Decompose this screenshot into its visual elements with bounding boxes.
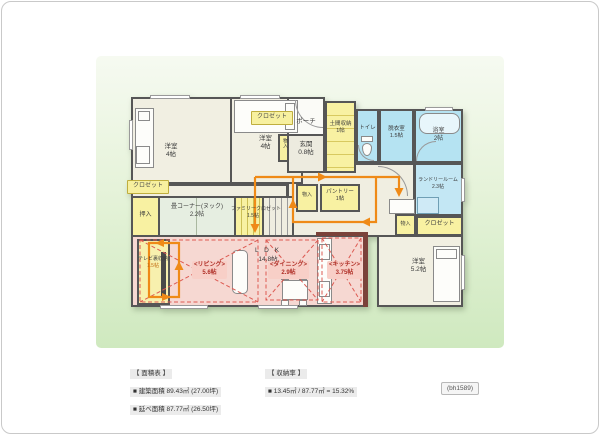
bedroom-c-label: 洋室5.2帖 <box>396 258 441 275</box>
kitchen-zone-badge: <キッチン>3.75帖 <box>327 261 362 279</box>
family-closet-label: ファミリークロゼット1.5帖 <box>231 206 275 219</box>
closet-left-badge: クロゼット <box>127 180 169 194</box>
toilet-tank-icon <box>361 136 373 142</box>
closet-right-label: クロゼット <box>417 221 462 229</box>
closet-top-badge: クロゼット <box>251 111 293 125</box>
toilet-label: トイレ <box>357 125 378 132</box>
bedroom-c-storage-label: 物入 <box>396 221 415 228</box>
kitchen-stove-icon <box>319 281 330 297</box>
doma-storage-label: 土間収納1帖 <box>326 121 355 135</box>
storage-ratio-legend: 【 収納率 】 ■ 13.45㎡ / 87.77㎡ = 15.32% <box>265 362 357 398</box>
kitchen-sink-icon <box>319 244 330 260</box>
window <box>425 107 453 111</box>
doma-storage <box>325 101 356 173</box>
area-legend-row: ■ 建築面積 89.43㎡ (27.00坪) <box>130 387 221 397</box>
window <box>150 95 190 99</box>
window <box>160 305 208 309</box>
bathroom-label: 浴室2帖 <box>422 128 455 144</box>
dressing-room-label: 脱衣室1.5帖 <box>380 126 413 140</box>
area-legend: 【 面積表 】 ■ 建築面積 89.43㎡ (27.00坪) ■ 延べ面積 87… <box>130 362 221 416</box>
dining-table-icon <box>282 280 308 300</box>
plan-code-tag: (bh1589) <box>441 382 479 395</box>
storage-legend-title: 【 収納率 】 <box>265 369 307 379</box>
window <box>129 120 133 150</box>
porch-label: ポーチ <box>291 118 321 126</box>
washing-machine-icon <box>417 197 439 214</box>
laundry-room-label: ランドリールーム2.3帖 <box>411 177 465 190</box>
area-legend-title: 【 面積表 】 <box>130 369 172 379</box>
tv-storage-label: テレビ裏収納1.5帖 <box>134 256 172 269</box>
entrance-label: 玄関0.8帖 <box>292 141 320 158</box>
pantry-label: パントリー1帖 <box>321 189 359 203</box>
bedroom-a-label: 洋室4帖 <box>146 143 196 160</box>
floorplan-card: クロゼット クロゼット 洋室4帖 洋室4帖 ポーチ 玄関0.8帖 物入 土間収納… <box>0 0 600 435</box>
kitchen-wall-right <box>363 232 368 307</box>
dining-chair-icon <box>299 300 307 306</box>
window <box>240 95 280 99</box>
hall-storage-label: 物入 <box>297 192 317 199</box>
dining-zone-badge: <ダイニング>2.9帖 <box>268 261 309 279</box>
pillow-icon-a <box>138 111 150 121</box>
entrance-storage-label: 物入 <box>279 138 288 148</box>
storage-legend-row: ■ 13.45㎡ / 87.77㎡ = 15.32% <box>265 387 357 397</box>
area-legend-row: ■ 延べ面積 87.77㎡ (26.50坪) <box>130 405 221 415</box>
kitchen-wall-top <box>316 232 368 236</box>
oshiire-label: 押入 <box>132 212 159 220</box>
window <box>461 255 465 290</box>
tatami-nook-label: 畳コーナー(ヌック)2.2帖 <box>160 204 234 220</box>
washbasin-icon <box>389 199 415 214</box>
living-zone-badge: <リビング>5.6帖 <box>192 261 227 279</box>
window <box>258 305 298 309</box>
